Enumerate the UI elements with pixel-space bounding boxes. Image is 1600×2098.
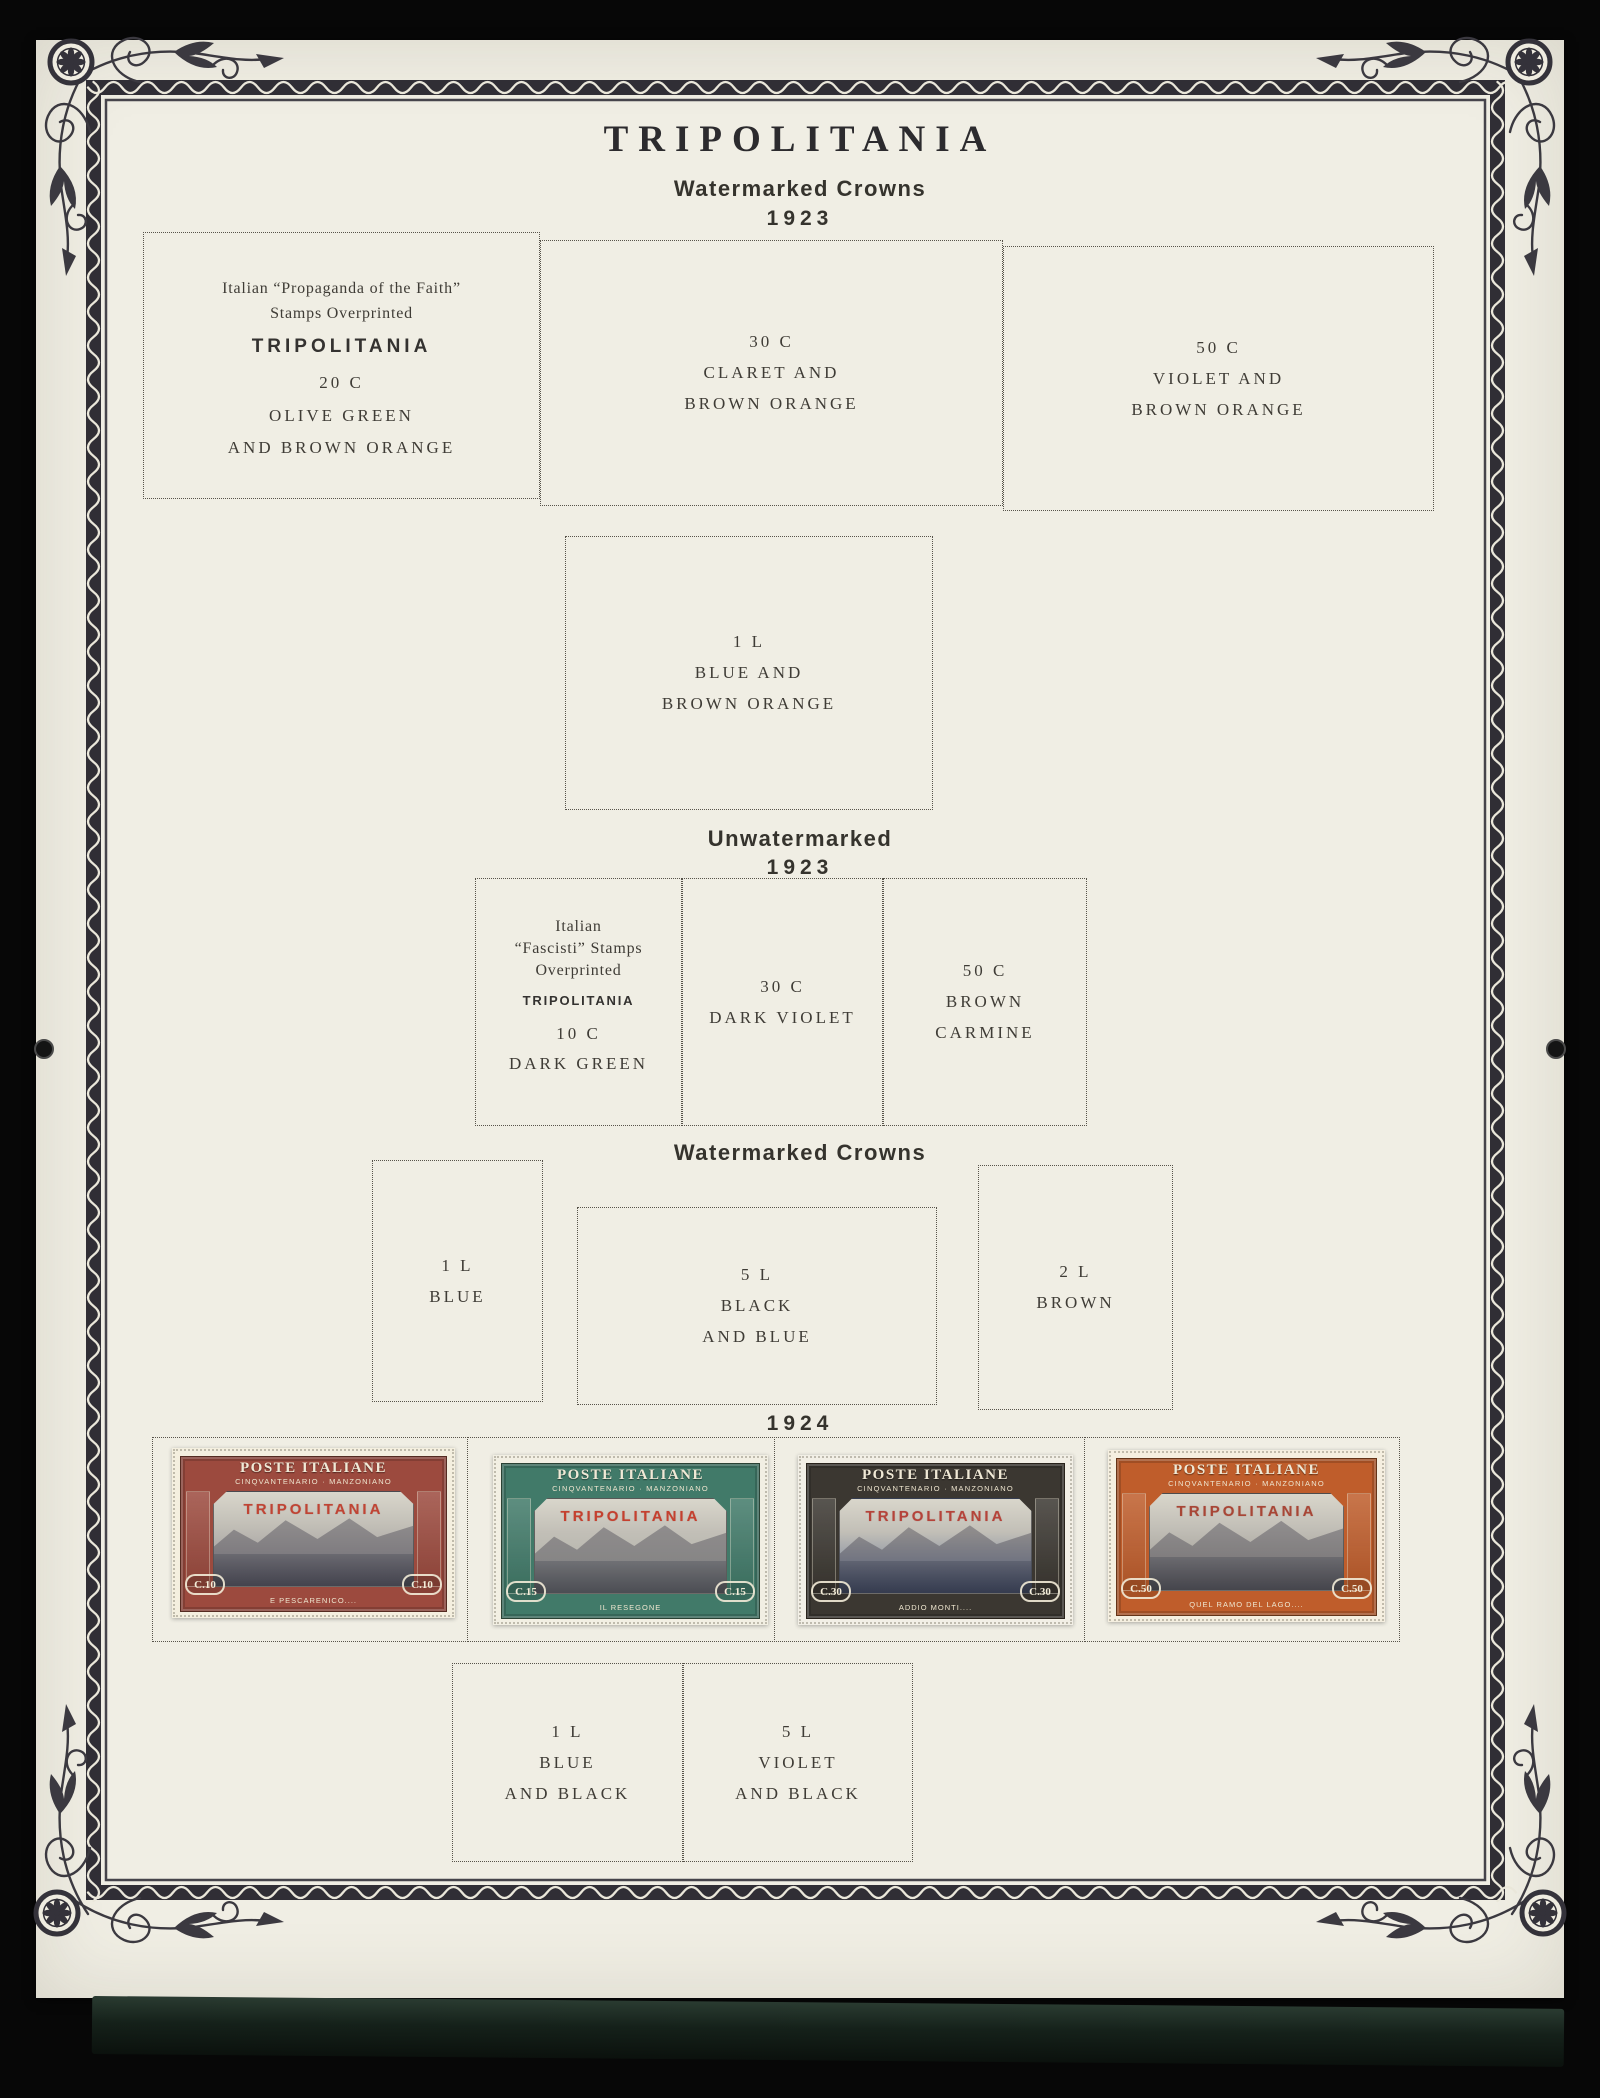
stamp-placeholder-box: 5 L VIOLET AND BLACK <box>683 1663 913 1862</box>
placeholder-line: 1 L <box>733 632 765 652</box>
stamp-title: POSTE ITALIANE <box>807 1467 1064 1484</box>
placeholder-line: 10 C <box>556 1024 601 1044</box>
stamp-overprint: TRIPOLITANIA <box>502 1508 759 1525</box>
placeholder-line: AND BLUE <box>702 1327 811 1347</box>
placeholder-line: 1 L <box>551 1722 583 1742</box>
stamp-overprint: TRIPOLITANIA <box>807 1508 1064 1525</box>
stamp-placeholder-box: 30 C CLARET AND BROWN ORANGE <box>540 240 1003 506</box>
stamp-frame: POSTE ITALIANE CINQVANTENARIO · MANZONIA… <box>501 1463 760 1619</box>
stamp-placeholder-box: 50 C BROWN CARMINE <box>883 878 1087 1126</box>
stamp-value-right: C.15 <box>715 1581 755 1602</box>
placeholder-line: 50 C <box>1196 338 1241 358</box>
stamp-frame: POSTE ITALIANE CINQVANTENARIO · MANZONIA… <box>180 1456 447 1612</box>
placeholder-line: BROWN ORANGE <box>684 394 858 414</box>
placeholder-line: Overprinted <box>535 961 621 980</box>
placeholder-line: 1 L <box>441 1256 473 1276</box>
placeholder-line: BROWN ORANGE <box>662 694 836 714</box>
placeholder-line: TRIPOLITANIA <box>252 337 432 357</box>
stamp-placeholder-box: 1 L BLUE AND BROWN ORANGE <box>565 536 933 810</box>
stamp-vignette-water <box>535 1561 726 1593</box>
placeholder-line: BROWN ORANGE <box>1131 400 1305 420</box>
stamp-value-left: C.15 <box>506 1581 546 1602</box>
placeholder-line: OLIVE GREEN <box>269 406 414 426</box>
placeholder-line: BROWN <box>1036 1293 1114 1313</box>
stamp-title: POSTE ITALIANE <box>1117 1462 1376 1479</box>
placeholder-line: BLUE <box>429 1287 485 1307</box>
placeholder-line: VIOLET AND <box>1153 369 1284 389</box>
placeholder-line: 30 C <box>760 977 805 997</box>
placeholder-line: BLACK <box>721 1296 794 1316</box>
stamp-title: POSTE ITALIANE <box>502 1467 759 1484</box>
album-cover-edge <box>92 1996 1564 2067</box>
stamp-value-right: C.30 <box>1020 1581 1060 1602</box>
placeholder-line: 30 C <box>749 332 794 352</box>
placeholder-line: Italian “Propaganda of the Faith” <box>222 279 461 298</box>
stamp-manzoni-10c: POSTE ITALIANE CINQVANTENARIO · MANZONIA… <box>172 1448 455 1618</box>
placeholder-line: TRIPOLITANIA <box>523 994 635 1008</box>
stamp-caption: QUEL RAMO DEL LAGO.... <box>1153 1600 1340 1609</box>
section-heading-unwatermarked: Unwatermarked <box>36 826 1564 852</box>
section-year-1923-b: 1923 <box>36 856 1564 880</box>
stamp-series: CINQVANTENARIO · MANZONIANO <box>807 1484 1064 1493</box>
placeholder-line: DARK GREEN <box>509 1054 648 1074</box>
placeholder-line: AND BLACK <box>735 1784 861 1804</box>
page-title: TRIPOLITANIA <box>36 118 1564 161</box>
placeholder-line: Stamps Overprinted <box>270 304 413 323</box>
stamp-value-right: C.10 <box>402 1574 442 1595</box>
stamp-vignette-water <box>214 1554 413 1586</box>
placeholder-line: “Fascisti” Stamps <box>515 939 643 958</box>
stamp-value-left: C.30 <box>811 1581 851 1602</box>
placeholder-line: 20 C <box>319 373 364 393</box>
stamp-frame: POSTE ITALIANE CINQVANTENARIO · MANZONIA… <box>806 1463 1065 1619</box>
placeholder-line: 50 C <box>963 961 1008 981</box>
stamp-placeholder-box: 50 C VIOLET AND BROWN ORANGE <box>1003 246 1434 511</box>
stamp-vignette-water <box>1150 1557 1343 1590</box>
stamp-overprint: TRIPOLITANIA <box>181 1501 446 1518</box>
placeholder-line: VIOLET <box>758 1753 837 1773</box>
section-heading-watermarked-1: Watermarked Crowns <box>36 176 1564 202</box>
stamp-series: CINQVANTENARIO · MANZONIANO <box>1117 1479 1376 1488</box>
stamp-placeholder-box: 1 L BLUE <box>372 1160 543 1402</box>
stamp-caption: IL RESEGONE <box>538 1603 723 1612</box>
stamp-vignette-water <box>840 1561 1031 1593</box>
stamp-value-left: C.50 <box>1121 1578 1161 1599</box>
placeholder-line: BLUE AND <box>695 663 804 683</box>
section-heading-watermarked-2: Watermarked Crowns <box>36 1140 1564 1166</box>
placeholder-line: BROWN <box>946 992 1024 1012</box>
stamp-title: POSTE ITALIANE <box>181 1460 446 1477</box>
stamp-value-right: C.50 <box>1332 1578 1372 1599</box>
stamp-series: CINQVANTENARIO · MANZONIANO <box>181 1477 446 1486</box>
stamp-placeholder-box: 5 L BLACK AND BLUE <box>577 1207 937 1405</box>
stamp-placeholder-box: 30 C DARK VIOLET <box>682 878 883 1126</box>
placeholder-line: AND BROWN ORANGE <box>228 438 455 458</box>
stamp-caption: ADDIO MONTI.... <box>843 1603 1028 1612</box>
placeholder-line: 5 L <box>782 1722 814 1742</box>
stamp-placeholder-box: Italian “Fascisti” Stamps Overprinted TR… <box>475 878 682 1126</box>
stamp-placeholder-box: Italian “Propaganda of the Faith” Stamps… <box>143 232 540 499</box>
placeholder-line: CLARET AND <box>704 363 840 383</box>
section-year-1924: 1924 <box>36 1412 1564 1436</box>
stamp-frame: POSTE ITALIANE CINQVANTENARIO · MANZONIA… <box>1116 1458 1377 1616</box>
stamp-series: CINQVANTENARIO · MANZONIANO <box>502 1484 759 1493</box>
stamp-placeholder-box: 2 L BROWN <box>978 1165 1173 1410</box>
stamp-value-left: C.10 <box>185 1574 225 1595</box>
placeholder-line: AND BLACK <box>505 1784 631 1804</box>
placeholder-line: CARMINE <box>935 1023 1034 1043</box>
stamp-manzoni-50c: POSTE ITALIANE CINQVANTENARIO · MANZONIA… <box>1108 1450 1385 1622</box>
stamp-placeholder-box: 1 L BLUE AND BLACK <box>452 1663 683 1862</box>
stamp-overprint: TRIPOLITANIA <box>1117 1503 1376 1520</box>
section-year-1923-a: 1923 <box>36 207 1564 231</box>
placeholder-line: Italian <box>555 917 601 936</box>
stamp-manzoni-30c: POSTE ITALIANE CINQVANTENARIO · MANZONIA… <box>798 1455 1073 1625</box>
placeholder-line: DARK VIOLET <box>709 1008 855 1028</box>
stamp-caption: E PESCARENICO.... <box>218 1596 409 1605</box>
stamp-manzoni-15c: POSTE ITALIANE CINQVANTENARIO · MANZONIA… <box>493 1455 768 1625</box>
scanned-album-page: TRIPOLITANIA Watermarked Crowns 1923 Ita… <box>0 0 1600 2098</box>
placeholder-line: 2 L <box>1059 1262 1091 1282</box>
placeholder-line: BLUE <box>539 1753 595 1773</box>
placeholder-line: 5 L <box>741 1265 773 1285</box>
